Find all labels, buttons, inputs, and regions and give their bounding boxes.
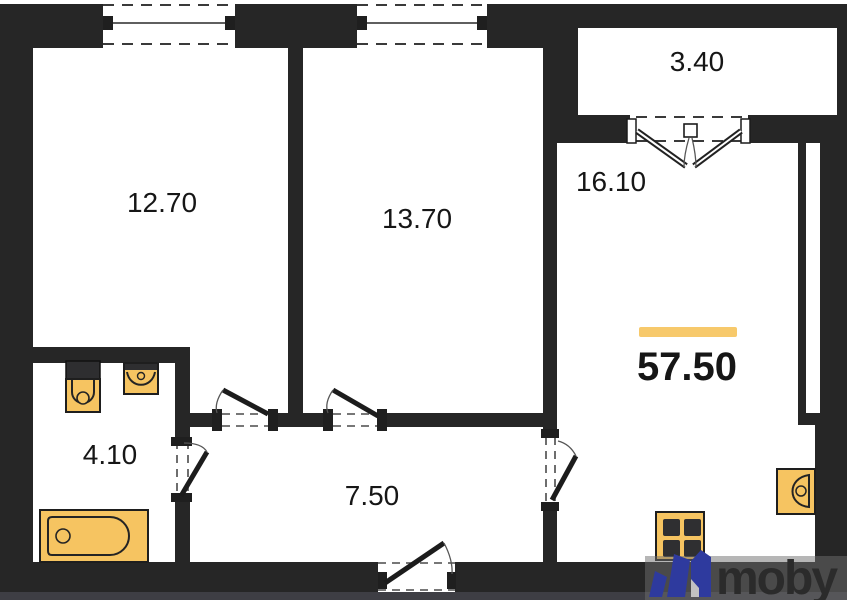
stove-burner <box>684 519 701 536</box>
door-jamb-left <box>627 119 636 143</box>
toilet-flush-circle <box>77 392 89 404</box>
wall-bottom-left <box>0 562 378 592</box>
wall-hallway-top-c <box>378 413 543 427</box>
wall-bedroom2-living <box>543 47 557 437</box>
basin-back-ledge <box>125 364 157 370</box>
watermark-brand-text: moby <box>716 552 838 600</box>
wall-balcony-top <box>560 4 847 28</box>
wall-bathroom-top <box>33 347 190 363</box>
watermark: moby <box>645 550 847 600</box>
kitchen-sink <box>777 469 815 514</box>
door-jamb <box>377 409 387 431</box>
stove <box>656 512 704 560</box>
wall-bathroom-right-lower <box>175 497 190 562</box>
stove-burner <box>663 519 680 536</box>
wall-balcony-bottom-right <box>748 115 847 143</box>
door-jamb <box>541 502 559 511</box>
window-end-block <box>357 16 367 30</box>
label-balcony-area: 3.40 <box>670 46 725 77</box>
label-hallway-area: 7.50 <box>345 480 400 511</box>
wall-top-a <box>0 4 103 48</box>
stove-burner <box>663 540 680 557</box>
wall-living-door-lower <box>543 503 557 562</box>
label-living-area: 16.10 <box>576 166 646 197</box>
total-area-accent-bar <box>639 327 737 337</box>
label-bathroom-area: 4.10 <box>83 439 138 470</box>
kitchen-sink-drain <box>796 486 806 496</box>
window-end-block <box>103 16 113 30</box>
window-end-block <box>477 16 487 30</box>
door-center-latch <box>684 124 697 137</box>
toilet <box>66 361 100 412</box>
wall-right-slot-cap <box>798 413 820 425</box>
wall-right-outer-leaf <box>820 143 847 425</box>
door-jamb <box>541 429 559 438</box>
wall-between-bedrooms <box>288 47 303 413</box>
basin-drain <box>138 373 145 380</box>
door-jamb <box>171 437 192 446</box>
bathtub <box>40 510 148 562</box>
door-jamb-right <box>741 119 750 143</box>
wash-basin <box>124 363 158 394</box>
floor-plan: 12.70 13.70 16.10 3.40 4.10 7.50 57.50 m… <box>0 0 847 600</box>
label-bedroom2-area: 13.70 <box>382 203 452 234</box>
label-bedroom1-area: 12.70 <box>127 187 197 218</box>
door-jamb <box>447 572 456 589</box>
wall-balcony-bottom-left <box>560 115 630 143</box>
door-jamb <box>268 409 278 431</box>
label-total-area: 57.50 <box>637 345 737 389</box>
wall-top-b <box>235 4 357 48</box>
bathtub-drain <box>56 529 70 543</box>
toilet-tank <box>66 361 100 379</box>
window-end-block <box>225 16 235 30</box>
wall-left-outer <box>0 4 33 592</box>
wall-right-inner-leaf <box>798 143 806 425</box>
